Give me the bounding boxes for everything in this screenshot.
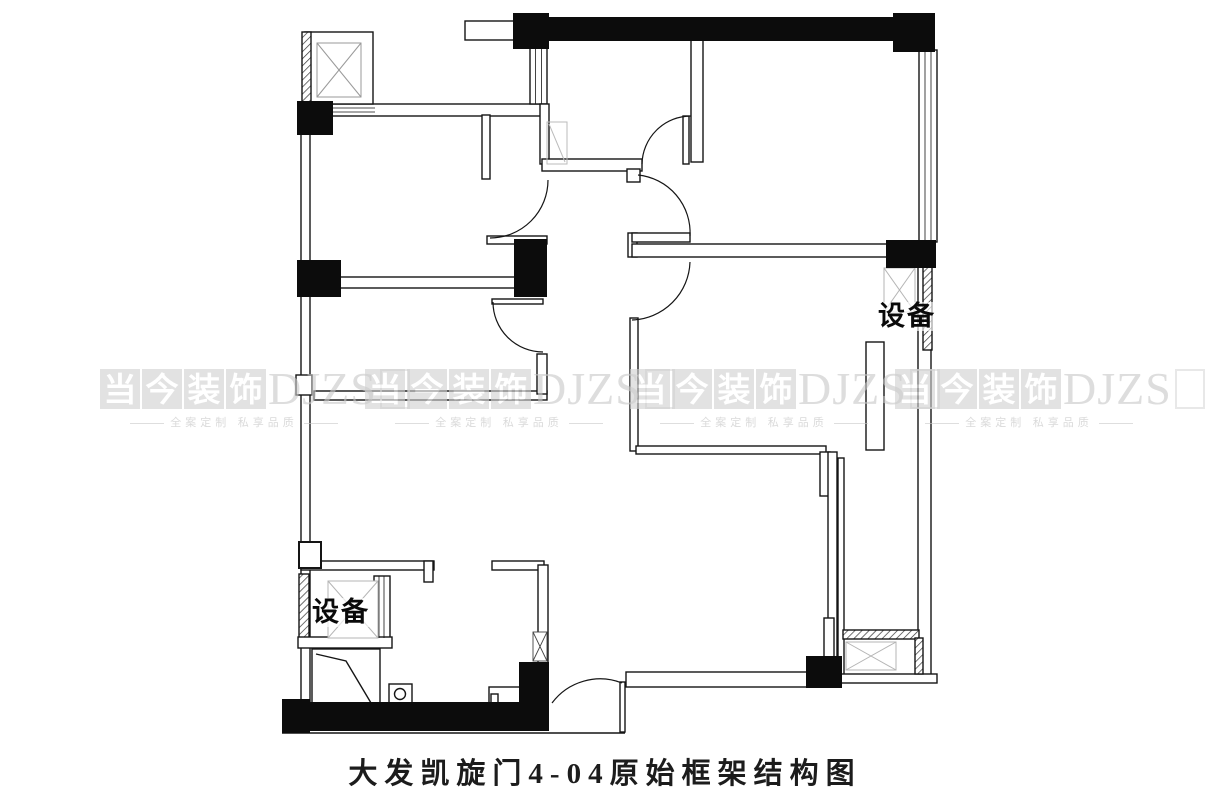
window-right xyxy=(919,50,937,242)
column xyxy=(297,260,341,297)
walls xyxy=(296,21,937,732)
column xyxy=(513,13,549,49)
balcony-left-wall xyxy=(838,458,844,676)
shaft-symbols xyxy=(317,43,915,670)
door-arc xyxy=(490,180,548,238)
door-leaf xyxy=(492,299,543,304)
column xyxy=(806,656,842,688)
door-arcs xyxy=(490,116,691,703)
bottom-right-wall xyxy=(626,672,807,687)
entry-door-leaf xyxy=(620,682,625,732)
column xyxy=(297,101,333,135)
top-beam xyxy=(513,17,933,41)
column xyxy=(886,240,936,268)
drawing-title: 大发凯旋门4-04原始框架结构图 xyxy=(0,750,1210,792)
door-arc xyxy=(632,262,690,320)
top-left-wall xyxy=(331,104,546,116)
floor-plan-page: 当今装饰DJZS 全案定制 私享品质 当今装饰DJZS 全案定制 私享品质 当今… xyxy=(0,0,1210,800)
equipment-label-right: 设备 xyxy=(878,302,936,331)
door-leaf xyxy=(683,116,689,164)
door-arc xyxy=(638,175,690,236)
hatched-wall xyxy=(299,574,309,638)
floor-plan-drawing xyxy=(0,0,1210,800)
hatched-wall xyxy=(302,32,311,104)
entry-door-arc xyxy=(552,679,622,703)
door-arc xyxy=(493,302,543,352)
hatched-wall xyxy=(843,630,919,639)
equipment-label-left: 设备 xyxy=(312,598,370,627)
hatched-wall xyxy=(915,638,923,674)
window-top-middle xyxy=(530,42,547,104)
column xyxy=(893,13,935,52)
living-top-wall xyxy=(632,244,888,257)
column xyxy=(514,239,547,297)
bottom-bearing-wall xyxy=(282,702,549,731)
